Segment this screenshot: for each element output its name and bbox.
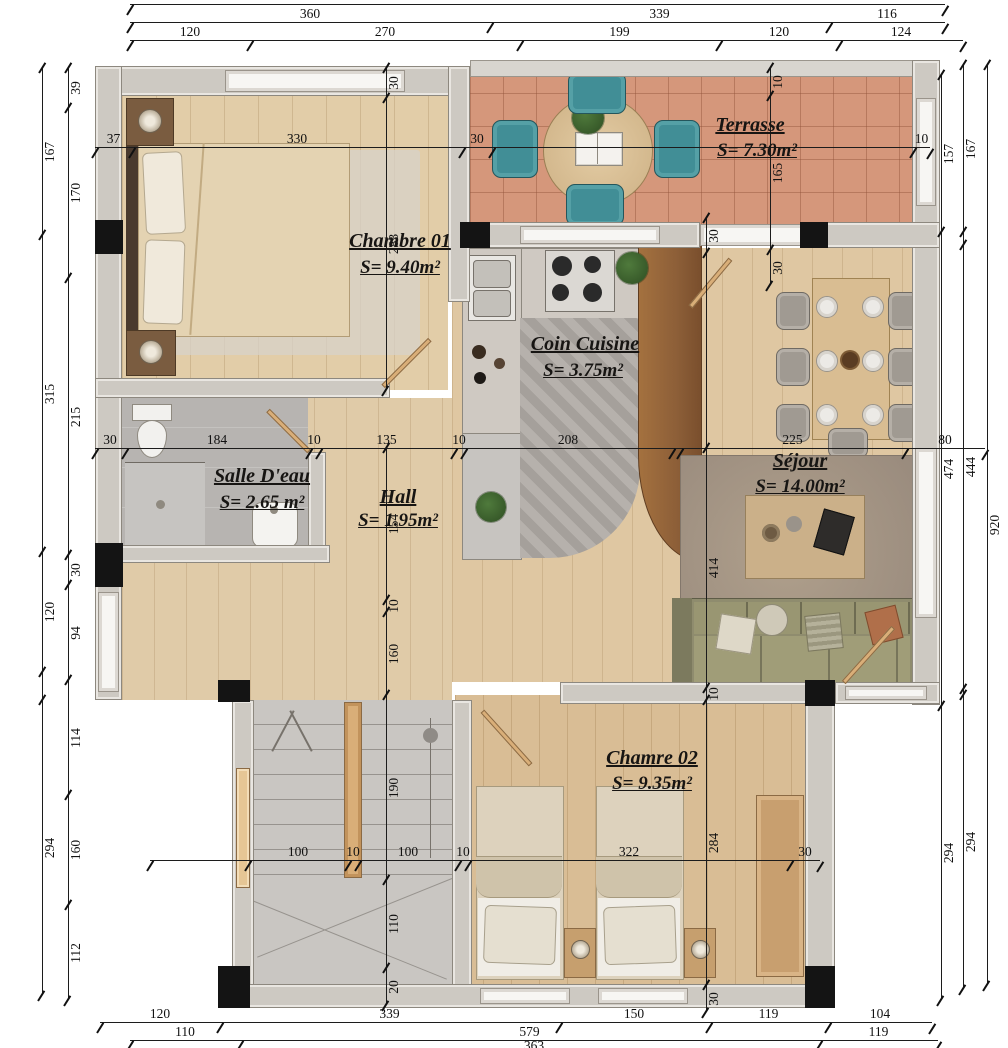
dim-segment: 10 [309,434,319,449]
window-chambre01-top [225,70,405,92]
dining-chair-1 [776,292,810,330]
dim-col-sejour-chambre02: 30 414 10 284 30 [706,218,721,1012]
dim-segment: 10 [913,133,930,148]
terrasse-chair-top [568,72,626,114]
dim-segment [706,253,721,448]
coffee-table-bowl-2 [786,516,802,532]
plate-5 [816,404,838,426]
dim-col-left-outer: 167 315 120 294 [42,68,57,995]
dim-segment: 184 [125,434,309,449]
dim-row-top-1: 360 339 116 [130,8,945,23]
window-sejour-bay [915,448,937,618]
dim-segment: 20 [386,968,401,1005]
plate-4 [862,350,884,372]
stove-burner-4 [583,283,602,302]
window-terrasse-right [916,98,936,206]
dim-segment: 284 [706,700,721,985]
dim-segment [672,434,680,449]
area-hall: S= 1.95m² [358,510,438,532]
dim-col-terrasse: 10 165 30 [770,68,785,285]
lamp-ch2-1 [571,940,590,959]
bed1-pillow [483,905,557,965]
column-stairs-topleft [218,680,250,702]
bed2-pillow [603,905,677,965]
wall-terrasse-dining-right [815,222,940,248]
dim-segment: 120 [719,26,839,41]
dim-col-right-mid: 167 444 294 [963,65,978,989]
dim-row-bottom-overall: 363 [130,1040,938,1048]
dim-segment: 120 [130,26,250,41]
label-salledeau: Salle D'eau [214,465,310,488]
dim-segment: 294 [941,706,956,1000]
column-chambre02-bottomright [805,966,835,1008]
label-terrasse: Terrasse [715,114,784,137]
dim-segment: 920 [987,65,1002,985]
dim-segment: 120 [42,552,57,672]
dim-segment: 30 [95,434,125,449]
window-kitchen-terrasse [520,226,660,244]
dim-segment [492,133,913,148]
dim-segment: 322 [468,846,790,861]
wall-chambre01-bottom [95,378,390,398]
bed-pillow-2 [143,239,186,324]
floor-plan: Chambre 01 S= 9.40m² Terrasse S= 7.30m² … [0,0,1008,1048]
dim-segment: 167 [963,65,978,232]
dim-col-right-outer: 920 [987,65,1002,985]
dim-segment: 119 [819,1026,938,1041]
window-sejour-bottom [845,686,927,700]
label-cuisine: Coin Cuisine [531,333,639,356]
dim-segment: 414 [706,448,721,688]
dim-segment: 37 [95,133,132,148]
dim-row-interior-mid: 30 184 10 135 10 208 225 80 [95,434,985,449]
stairs-walkline-dot [423,728,438,743]
area-salledeau: S= 2.65 m² [220,492,305,514]
area-cuisine: S= 3.75m² [543,360,623,382]
kitchen-sink-basin-2 [473,290,511,317]
lamp-nightstand-2 [139,340,163,364]
dim-segment: 94 [68,585,83,680]
dim-segment: 110 [130,1026,240,1041]
bed2-blanket-fold [596,856,682,898]
dim-segment: 30 [706,985,721,1012]
dim-segment: 170 [68,108,83,278]
column-left-2 [95,543,123,587]
window-bottom-2 [598,988,688,1004]
dim-segment: 150 [559,1008,709,1023]
pillow-white [715,613,756,654]
column-chambre02-topright [805,680,835,706]
lamp-nightstand-1 [138,109,162,133]
dim-segment: 110 [386,880,401,968]
column-kitchen-left [460,222,490,248]
dim-segment: 30 [770,250,785,285]
dim-row-top-2: 120 270 199 120 124 [130,26,963,41]
label-sejour: Séjour [773,450,827,473]
plate-1 [816,296,838,318]
dim-segment: 167 [42,68,57,235]
kitchen-sink-basin-1 [473,260,511,288]
area-chambre01: S= 9.40m² [360,257,440,279]
dim-row-top-overall: 815 [130,0,945,5]
dim-segment: 270 [250,26,520,41]
window-bottom-1 [480,988,570,1004]
dim-segment: 294 [963,695,978,989]
terrasse-chair-bottom [566,184,624,226]
dim-segment: 315 [42,235,57,552]
dim-col-left-inner: 39 170 215 30 94 114 160 112 [68,68,83,1000]
area-chambre02: S= 9.35m² [612,773,692,795]
label-hall: Hall [380,486,417,509]
bed-pillow-1 [142,151,186,235]
dim-segment: 10 [454,434,464,449]
area-sejour: S= 14.00m² [755,476,844,498]
dim-segment: 339 [220,1008,559,1023]
dim-segment: 815 [130,0,945,5]
dim-segment: 160 [386,612,401,695]
dim-segment: 363 [130,1040,938,1048]
plate-2 [862,296,884,318]
wall-salledeau-bottom [95,545,330,563]
stove-burner-1 [552,256,572,276]
stove-burner-3 [552,284,569,301]
table-centerpiece [842,352,858,368]
terrasse-chair-right [654,120,700,178]
plant-kitchen-1 [616,252,648,284]
dim-segment: 10 [458,846,468,861]
plate-6 [862,404,884,426]
dim-row-bottom-1: 120 339 150 119 104 [100,1008,932,1023]
wall-terrasse-top [470,60,940,77]
plate-3 [816,350,838,372]
dim-segment: 124 [839,26,963,41]
dim-segment: 474 [941,232,956,706]
bed1-blanket-fold [476,856,562,898]
stove-burner-2 [584,256,601,273]
column-left-1 [95,220,123,254]
dim-segment: 444 [963,245,978,689]
coffee-set-2 [474,372,486,384]
dim-segment: 80 [905,434,985,449]
dim-segment: 360 [130,8,490,23]
wardrobe-ch2 [756,795,804,977]
dim-col-chambre01: 30 283 [386,68,401,390]
dim-segment: 119 [709,1008,828,1023]
dim-segment: 10 [348,846,358,861]
dim-segment: 215 [68,278,83,555]
wall-chambre02-top [560,682,835,704]
dim-segment: 100 [248,846,348,861]
dim-segment: 112 [68,905,83,1000]
dim-segment: 100 [358,846,458,861]
label-chambre02: Chamre 02 [606,747,698,770]
dim-segment: 199 [520,26,719,41]
floor-shower [125,462,205,549]
dim-segment: 116 [829,8,945,23]
dim-segment: 157 [941,75,956,232]
dim-segment: 208 [464,434,672,449]
dim-segment: 30 [462,133,492,148]
dim-row-interior-top: 37 330 30 10 [95,133,930,148]
bed-headboard [126,146,138,332]
window-left-lower [98,592,119,692]
toilet-tank [132,404,172,421]
dim-segment: 330 [132,133,462,148]
terrasse-chair-left [492,120,538,178]
area-terrasse: S= 7.30m² [717,140,797,162]
coffee-set [472,345,486,359]
dining-chair-2 [776,348,810,386]
wall-chambre01-kitchen [448,66,470,302]
dim-segment: 104 [828,1008,932,1023]
dim-segment: 120 [100,1008,220,1023]
dim-segment: 114 [68,680,83,795]
dim-segment: 190 [386,695,401,880]
column-dining-left [800,222,828,248]
dim-segment [150,846,248,861]
pillow-round [756,604,788,636]
pillow-textured [804,612,844,652]
dim-col-right-inner: 157 474 294 [941,75,956,1000]
coffee-set-3 [494,358,505,369]
dim-segment: 160 [68,795,83,905]
sofa-armrest-left [672,598,692,690]
shower-drain [156,500,165,509]
coffee-table-bowl-1 [762,524,780,542]
label-chambre01: Chambre 01 [349,230,451,253]
dim-segment: 339 [490,8,829,23]
dim-segment: 294 [42,700,57,995]
dim-segment: 30 [790,846,820,861]
plant-kitchen-2 [476,492,506,522]
column-stairs-bottomleft [218,966,250,1008]
